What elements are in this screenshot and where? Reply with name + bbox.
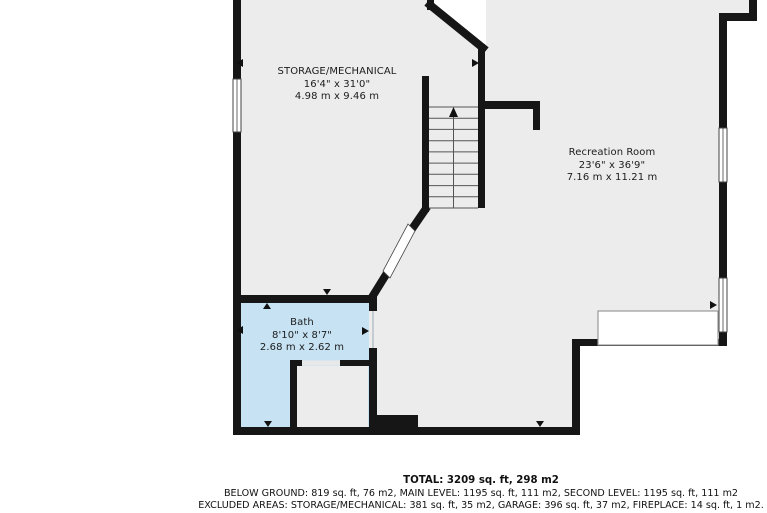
room-name: STORAGE/MECHANICAL (237, 66, 437, 79)
wall-closet-top-right (340, 360, 377, 366)
room-dimensions-ft: 8'10" x 8'7" (232, 330, 372, 343)
wall-bottom-right-vertical (572, 339, 580, 435)
closet-floor (297, 366, 368, 427)
floor-plan-page: STORAGE/MECHANICAL 16'4" x 31'0" 4.98 m … (0, 0, 767, 511)
wall-stair-landing-stub (533, 101, 540, 130)
room-dimensions-m: 2.68 m x 2.62 m (232, 342, 372, 355)
wall-top-right-jog (719, 13, 757, 21)
levels-area-text: BELOW GROUND: 819 sq. ft, 76 m2, MAIN LE… (196, 488, 766, 501)
room-dimensions-ft: 23'6" x 36'9" (512, 160, 712, 173)
wall-bottom-bump (375, 415, 418, 435)
wall-top-right-stub (749, 0, 757, 14)
room-dimensions-m: 7.16 m x 11.21 m (512, 172, 712, 185)
room-name: Recreation Room (512, 147, 712, 160)
room-label-storage-mechanical: STORAGE/MECHANICAL 16'4" x 31'0" 4.98 m … (237, 66, 437, 104)
area-summary: TOTAL: 3209 sq. ft, 298 m2 BELOW GROUND:… (196, 475, 766, 513)
wall-stair-right (478, 44, 485, 208)
wall-bath-right-upper (369, 295, 377, 311)
total-area-text: TOTAL: 3209 sq. ft, 298 m2 (196, 475, 766, 488)
room-label-recreation-room: Recreation Room 23'6" x 36'9" 7.16 m x 1… (512, 147, 712, 185)
room-label-bath: Bath 8'10" x 8'7" 2.68 m x 2.62 m (232, 317, 372, 355)
room-dimensions-m: 4.98 m x 9.46 m (237, 91, 437, 104)
window-seat (598, 311, 718, 345)
wall-stair-landing-horizontal (483, 101, 540, 109)
room-dimensions-ft: 16'4" x 31'0" (237, 79, 437, 92)
wall-bath-top (233, 295, 377, 303)
wall-closet-left (290, 360, 297, 427)
room-name: Bath (232, 317, 372, 330)
